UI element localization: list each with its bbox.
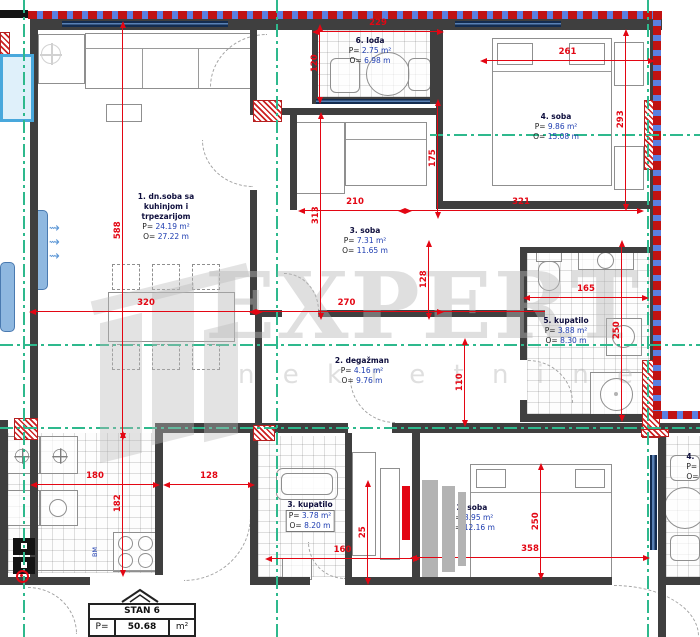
dimension-label: 358	[514, 545, 546, 554]
wall	[520, 247, 657, 253]
wall	[250, 433, 258, 585]
dimension-arrow	[437, 29, 444, 35]
dimension-label: 25	[359, 516, 368, 548]
chair	[192, 264, 220, 290]
dimension-arrow	[437, 309, 444, 315]
axis-line	[0, 344, 700, 346]
dimension-arrow	[410, 555, 417, 561]
dimension-arrow	[248, 482, 255, 488]
room-label-kupatilo3: 3. kupatilo P= 3.78 m² O= 8.20 m	[286, 500, 335, 532]
window	[62, 21, 228, 27]
dimension-label: 321	[505, 198, 537, 207]
kitchen-counter	[40, 490, 78, 526]
dimension-label: 270	[331, 299, 363, 308]
chair	[152, 264, 180, 290]
dimension-line	[487, 60, 648, 61]
sink-bowl	[597, 252, 614, 269]
door-arc	[28, 587, 77, 634]
stamp-p-label: P=	[90, 620, 116, 635]
dimension-label: 180	[79, 472, 111, 481]
dimension-arrow	[318, 313, 324, 320]
chair	[408, 58, 431, 91]
facade-strip-corner	[653, 411, 700, 419]
facade-strip-right	[653, 11, 661, 415]
chair	[670, 535, 700, 561]
wall	[666, 577, 700, 585]
axis-line	[23, 0, 25, 637]
door-arc	[284, 273, 319, 311]
wall	[412, 433, 420, 585]
dimension-arrow	[120, 431, 126, 438]
riser-marker	[402, 486, 410, 540]
side-table	[106, 104, 142, 122]
dimension-label: 320	[130, 299, 162, 308]
room-label-soba3: 3. soba P= 7.31 m² O= 11.65 m	[342, 226, 388, 256]
dimension-arrow	[265, 556, 272, 562]
dimension-extension	[437, 311, 545, 312]
wall-pier	[253, 100, 282, 122]
radiator	[0, 262, 15, 332]
nightstand	[614, 146, 644, 190]
dimension-arrow	[619, 415, 625, 422]
round-table	[664, 487, 700, 529]
wall	[250, 577, 310, 585]
stamp-roof-icon	[120, 586, 160, 604]
toilet	[538, 261, 560, 291]
wall	[0, 420, 8, 585]
dimension-arrow	[435, 99, 441, 106]
dimension-label: 175	[429, 142, 438, 174]
dimension-line	[36, 311, 256, 312]
wall	[520, 414, 660, 422]
wall	[290, 115, 297, 210]
shower	[590, 372, 644, 418]
dimension-arrow	[643, 555, 650, 561]
dimension-line	[319, 31, 437, 32]
chair	[112, 344, 140, 370]
dimension-arrow	[405, 208, 412, 214]
dimension-arrow	[623, 29, 629, 36]
dimension-line	[37, 484, 153, 485]
dimension-label: 250	[613, 314, 622, 346]
dimension-arrow	[480, 58, 487, 64]
door-arc	[202, 140, 253, 187]
dimension-label: 128	[420, 263, 429, 295]
dimension-label: 229	[362, 19, 394, 28]
dimension-arrow	[435, 212, 441, 219]
room-label-dnevna: 1. dn.soba sa kuhinjom i trpezarijom P= …	[138, 192, 194, 241]
appliance-label: BM	[91, 547, 99, 557]
window	[650, 455, 657, 550]
dimension-arrow	[298, 208, 305, 214]
dimension-label: 261	[552, 48, 584, 57]
dimension-arrow	[317, 24, 323, 31]
stamp-p-value: 50.68	[116, 620, 170, 635]
room-label-soba4: 4. soba P= 9.86 m² O= 15.08 m	[533, 112, 579, 142]
dimension-arrow	[30, 482, 37, 488]
dimension-label: 293	[617, 103, 626, 135]
dimension-arrow	[637, 208, 644, 214]
wardrobe	[422, 480, 438, 577]
room-label-degazman: 2. degažman P= 4.16 m² O= 9.76 m	[335, 356, 389, 386]
window	[316, 99, 430, 104]
door-arc	[614, 585, 699, 636]
dimension-label: 313	[312, 199, 321, 231]
dimension-arrow	[365, 578, 371, 585]
wall	[345, 577, 612, 585]
dimension-label: 165	[570, 285, 602, 294]
dimension-arrow	[153, 482, 160, 488]
dimension-arrow	[523, 295, 530, 301]
dimension-arrow	[642, 295, 649, 301]
wall	[0, 577, 90, 585]
wardrobe	[458, 492, 466, 566]
kitchen-sink	[40, 436, 78, 474]
chair	[112, 264, 140, 290]
wall-pier	[14, 418, 38, 440]
dimension-arrow	[619, 240, 625, 247]
apartment-stamp: STAN 6 P= 50.68 m²	[88, 603, 196, 637]
wall-pier	[641, 429, 669, 437]
wall	[658, 433, 666, 637]
dimension-arrow	[538, 463, 544, 470]
dimension-arrow	[538, 573, 544, 580]
dimension-arrow	[163, 482, 170, 488]
dimension-line	[170, 484, 248, 485]
nightstand	[614, 42, 644, 86]
dimension-label: 588	[114, 214, 123, 246]
stamp-title: STAN 6	[90, 605, 194, 620]
chair	[152, 344, 180, 370]
dimension-arrow	[120, 21, 126, 28]
axis-line	[276, 0, 278, 637]
stamp-p-unit: m²	[170, 620, 194, 635]
dimension-arrow	[648, 58, 655, 64]
dimension-label: 182	[114, 487, 123, 519]
window-box	[0, 54, 34, 122]
survey-point	[16, 570, 29, 583]
room-label-partial: 4. P= 2 O= 6	[686, 452, 700, 482]
chair	[192, 344, 220, 370]
dimension-label: 128	[193, 472, 225, 481]
dimension-arrow	[365, 480, 371, 487]
room-label-loggia: 6. lođa P= 2.75 m² O= 6.98 m	[349, 36, 392, 66]
dimension-label: 110	[456, 366, 465, 398]
dimension-label: 250	[532, 505, 541, 537]
armchair	[38, 34, 85, 84]
stove	[113, 532, 160, 572]
wall	[345, 433, 352, 585]
room-label-kupatilo5: 5. kupatilo P= 3.88 m² O= 8.30 m	[543, 316, 588, 346]
axis-line	[647, 0, 649, 637]
floor-plan: EXPERT n e k r e t n i n e	[0, 0, 700, 637]
bed	[345, 122, 427, 186]
dimension-arrow	[249, 309, 256, 315]
dimension-arrow	[426, 240, 432, 247]
room-label-soba2: 2. soba P= 8.95 m² O= 12.16 m	[449, 503, 495, 533]
dimension-line	[272, 558, 413, 559]
airflow-arrows: ⇝⇝⇝	[49, 222, 60, 264]
facade-strip-top	[28, 11, 662, 19]
cabinet	[380, 468, 400, 560]
door-arc	[184, 516, 251, 581]
dimension-arrow	[29, 309, 36, 315]
dimension-line	[256, 311, 437, 312]
dining-table	[108, 292, 235, 342]
dimension-label: 210	[339, 198, 371, 207]
dimension-arrow	[317, 97, 323, 104]
axis-line	[0, 427, 700, 429]
wall	[250, 190, 257, 315]
bathtub	[276, 468, 338, 500]
dimension-arrow	[318, 112, 324, 119]
dimension-line	[530, 297, 642, 298]
window	[455, 21, 561, 27]
dimension-label: 120	[311, 47, 320, 79]
dimension-arrow	[426, 313, 432, 320]
wall	[255, 310, 262, 423]
dimension-label: 160	[327, 546, 359, 555]
dimension-arrow	[462, 338, 468, 345]
dimension-arrow	[120, 570, 126, 577]
wall	[155, 423, 163, 575]
dimension-arrow	[462, 420, 468, 427]
wardrobe	[442, 486, 455, 572]
